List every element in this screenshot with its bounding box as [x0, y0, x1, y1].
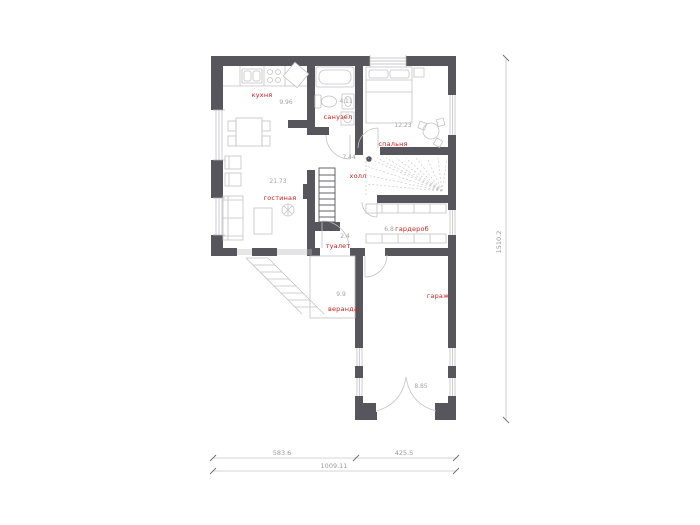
- room-label-garage: гараж: [427, 292, 449, 300]
- bed-icon: [366, 67, 412, 123]
- armchair-icon: [225, 156, 241, 169]
- room-area-hall: 7.44: [342, 154, 356, 161]
- room-label-hall: холл: [350, 172, 367, 180]
- window-icon: [370, 55, 406, 67]
- shelves-icon: [366, 204, 446, 213]
- floor-plan-drawing: кухня 9.96 санузел 4.11 спальня 12.23 го…: [0, 0, 700, 525]
- window-icon: [237, 250, 252, 254]
- room-area-porch: 9.9: [336, 291, 346, 298]
- window-icon: [277, 250, 312, 254]
- room-area-garage: 8.85: [414, 383, 428, 390]
- exterior-walls: [211, 56, 456, 420]
- room-area-wc: 2.4: [340, 233, 350, 240]
- nightstand-icon: [414, 68, 424, 77]
- tv-icon: [303, 184, 307, 199]
- window-icon: [450, 210, 455, 235]
- coffee-table-icon: [254, 208, 272, 234]
- window-icon: [357, 378, 362, 396]
- round-table-icon: [418, 118, 445, 147]
- room-area-bathroom: 4.11: [339, 98, 353, 105]
- bathtub-icon: [316, 67, 354, 87]
- room-label-bedroom: спальня: [378, 140, 407, 148]
- kitchen-sink-icon: [242, 69, 262, 83]
- kitchen-furniture: [223, 62, 309, 146]
- toilet-icon: [315, 95, 337, 108]
- dim-bottom-left: 583.6: [273, 449, 292, 457]
- dim-right-total: 1510.2: [495, 231, 503, 254]
- dim-bottom-total: 1009.11: [321, 462, 348, 470]
- room-area-bedroom: 12.23: [394, 122, 411, 129]
- doors: [322, 128, 436, 411]
- window-icon: [450, 378, 455, 396]
- dim-bottom-right: 425.5: [395, 449, 414, 457]
- room-label-bathroom: санузел: [324, 113, 353, 121]
- armchair-icon: [225, 173, 241, 186]
- winder-stairs-icon: [366, 157, 447, 195]
- corner-cabinet-icon: [283, 62, 308, 87]
- window-icon: [450, 95, 455, 135]
- room-area-wardrobe: 6.8: [384, 226, 394, 233]
- straight-stairs-icon: [319, 168, 335, 222]
- room-label-wardrobe: гардероб: [395, 225, 429, 233]
- window-icon: [450, 348, 455, 366]
- room-label-living: гостиная: [264, 194, 297, 202]
- dining-table-icon: [228, 118, 270, 146]
- shelves-icon: [366, 234, 446, 243]
- sofa-icon: [223, 196, 243, 240]
- door-arc-garage-inner: [365, 255, 387, 277]
- room-area-kitchen: 9.96: [279, 99, 293, 106]
- room-label-porch: веранда: [328, 305, 358, 313]
- plant-icon: [282, 204, 294, 216]
- floor-plan-page: кухня 9.96 санузел 4.11 спальня 12.23 го…: [0, 0, 700, 525]
- window-icon: [357, 348, 362, 366]
- room-label-kitchen: кухня: [252, 91, 273, 99]
- wardrobe-shelves: [366, 204, 446, 243]
- window-icon: [213, 110, 225, 160]
- room-area-living: 21.73: [269, 178, 286, 185]
- stove-icon: [268, 70, 281, 83]
- room-label-wc: туалет: [326, 242, 351, 250]
